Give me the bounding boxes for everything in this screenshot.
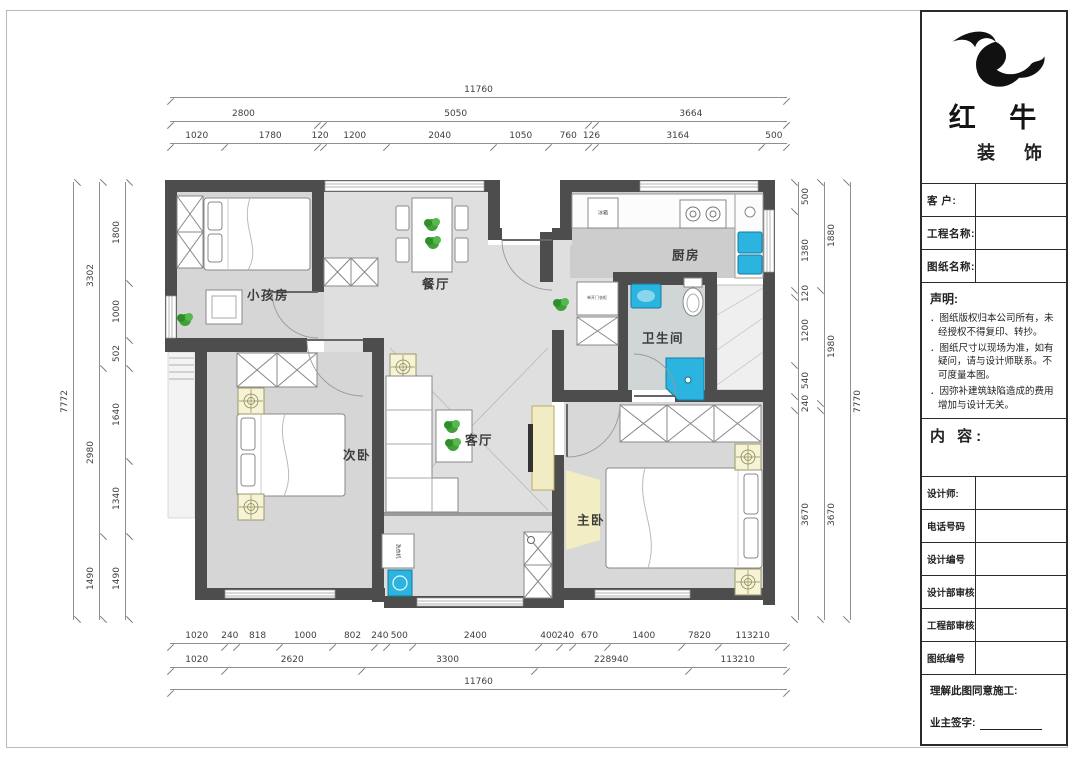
title-block: 红 牛 装 饰 客 户: 工程名称: 图纸名称: 声明: 图纸版权归本公司所有，… bbox=[920, 10, 1068, 746]
project-name-value-cell[interactable] bbox=[976, 217, 1066, 249]
dimension-value: 502 bbox=[113, 345, 122, 362]
dim-segment: 1200 bbox=[798, 297, 814, 366]
client-row: 客 户: bbox=[922, 184, 1066, 217]
closet-label: 单开门衣柜 bbox=[587, 295, 607, 301]
design-dept-review-label: 设计部审核 bbox=[922, 576, 976, 608]
dimension-value: 1000 bbox=[113, 300, 122, 323]
dimension-value: 1000 bbox=[294, 632, 317, 641]
dimension-value: 7820 bbox=[688, 632, 711, 641]
dimension-value: 1640 bbox=[113, 403, 122, 426]
dim-segment: 1000 bbox=[279, 630, 331, 644]
dimension-value: 2620 bbox=[281, 656, 304, 665]
dim-segment: 240 bbox=[224, 630, 237, 644]
dim-segment: 2980 bbox=[84, 368, 100, 536]
dimension-value: 3164 bbox=[666, 132, 689, 141]
dim-chain-bottom-detail: 1020240818100080224050024004002406701400… bbox=[170, 630, 787, 644]
washer-label: 洗衣机 bbox=[395, 543, 402, 558]
dim-segment: 3664 bbox=[595, 108, 787, 122]
dim-segment: 113210 bbox=[718, 630, 787, 644]
dimension-value: 2800 bbox=[232, 110, 255, 119]
drawing-name-row: 图纸名称: bbox=[922, 250, 1066, 283]
signature-section: 理解此图同意施工: 业主签字: bbox=[922, 675, 1066, 744]
drawing-name-value-cell[interactable] bbox=[976, 250, 1066, 282]
dim-segment: 240 bbox=[559, 630, 572, 644]
phone-row: 电话号码 bbox=[922, 510, 1066, 543]
second-bedroom-nightstand-2 bbox=[238, 494, 264, 520]
dimension-value: 2400 bbox=[464, 632, 487, 641]
dimension-value: 1800 bbox=[113, 221, 122, 244]
dim-segment: 540 bbox=[798, 365, 814, 396]
dimension-value: 1490 bbox=[87, 567, 96, 590]
dim-segment: 120 bbox=[798, 290, 814, 297]
dim-segment: 1780 bbox=[224, 130, 317, 144]
dimension-value: 7772 bbox=[61, 390, 70, 413]
dim-segment: 3670 bbox=[798, 410, 814, 620]
dimension-value: 1340 bbox=[113, 487, 122, 510]
dim-segment: 1020 bbox=[170, 130, 224, 144]
dimension-value: 3302 bbox=[87, 264, 96, 287]
dimension-value: 1980 bbox=[828, 335, 837, 358]
dimension-value: 113210 bbox=[721, 656, 755, 665]
drawing-number-label: 图纸编号 bbox=[922, 642, 976, 674]
dimension-value: 400 bbox=[540, 632, 557, 641]
dimension-value: 3670 bbox=[828, 503, 837, 526]
drawing-number-value-cell[interactable] bbox=[976, 642, 1066, 674]
dim-segment: 5050 bbox=[323, 108, 588, 122]
designer-row: 设计师: bbox=[922, 477, 1066, 510]
dim-segment: 670 bbox=[572, 630, 607, 644]
room-label-second-bedroom: 次卧 bbox=[343, 445, 371, 464]
dim-segment: 240 bbox=[798, 396, 814, 410]
room-label-kids-room: 小孩房 bbox=[247, 285, 289, 304]
dimension-value: 1020 bbox=[185, 656, 208, 665]
dim-segment: 228940 bbox=[534, 654, 688, 668]
dim-segment: 2040 bbox=[386, 130, 493, 144]
dim-chain-right-total: 7770 bbox=[850, 182, 866, 620]
room-label-dining-room: 餐厅 bbox=[422, 274, 450, 293]
design-number-value-cell[interactable] bbox=[976, 543, 1066, 575]
engineering-dept-review-row: 工程部审核 bbox=[922, 609, 1066, 642]
content-section: 内 容: bbox=[922, 419, 1066, 477]
dim-segment: 1020 bbox=[170, 654, 224, 668]
dim-segment: 502 bbox=[110, 340, 126, 368]
dimension-value: 1400 bbox=[632, 632, 655, 641]
dim-segment: 818 bbox=[236, 630, 279, 644]
dim-segment bbox=[824, 403, 840, 410]
master-nightstand-1 bbox=[735, 444, 761, 470]
dim-segment: 113210 bbox=[688, 654, 787, 668]
statement-item: 因弥补建筑缺陷造成的费用增加与设计无关。 bbox=[930, 385, 1060, 413]
left-exterior-strip bbox=[168, 352, 195, 518]
dim-segment: 1490 bbox=[110, 536, 126, 620]
corridor-closet bbox=[577, 282, 618, 345]
brand-name-primary: 红 牛 bbox=[939, 96, 1050, 135]
dim-chain-left-total: 7772 bbox=[58, 182, 74, 620]
dim-chain-top-detail: 102017801201200204010507601263164500 bbox=[170, 130, 787, 144]
dim-segment: 240 bbox=[374, 630, 387, 644]
engineering-dept-review-label: 工程部审核 bbox=[922, 609, 976, 641]
drawing-number-row: 图纸编号 bbox=[922, 642, 1066, 675]
dimension-value: 1050 bbox=[509, 132, 532, 141]
statement-title: 声明: bbox=[930, 290, 1060, 307]
dim-segment: 3302 bbox=[84, 182, 100, 368]
dim-chain-left-detail: 18001000502164013401490 bbox=[110, 182, 126, 620]
dim-segment: 11760 bbox=[170, 676, 787, 690]
design-number-label: 设计编号 bbox=[922, 543, 976, 575]
dim-segment: 1050 bbox=[493, 130, 548, 144]
dim-segment: 11760 bbox=[170, 84, 787, 98]
room-label-master-bedroom: 主卧 bbox=[577, 510, 605, 529]
dimension-value: 500 bbox=[391, 632, 408, 641]
dim-segment: 1490 bbox=[84, 536, 100, 620]
phone-label: 电话号码 bbox=[922, 510, 976, 542]
design-dept-review-row: 设计部审核 bbox=[922, 576, 1066, 609]
dimension-value: 1020 bbox=[185, 632, 208, 641]
dim-segment: 500 bbox=[386, 630, 412, 644]
dimension-value: 1200 bbox=[343, 132, 366, 141]
client-label: 客 户: bbox=[922, 184, 976, 216]
design-dept-review-value-cell[interactable] bbox=[976, 576, 1066, 608]
dim-segment: 7820 bbox=[681, 630, 719, 644]
dim-segment: 500 bbox=[761, 130, 787, 144]
dim-chain-right-detail: 500138012012005402403670 bbox=[798, 182, 814, 620]
bull-swoosh-logo bbox=[939, 22, 1049, 94]
dimension-value: 3300 bbox=[436, 656, 459, 665]
dim-segment bbox=[588, 108, 595, 122]
statement-section: 声明: 图纸版权归本公司所有，未经授权不得复印、转抄。 图纸尺寸以现场为准，如有… bbox=[922, 283, 1066, 419]
dimension-value: 1490 bbox=[113, 567, 122, 590]
dim-chain-right-groups: 188019803670 bbox=[824, 182, 840, 620]
dimension-value: 760 bbox=[560, 132, 577, 141]
dim-segment: 7772 bbox=[58, 182, 74, 620]
brand-name-secondary: 装 饰 bbox=[977, 139, 1066, 165]
room-label-living-room: 客厅 bbox=[465, 430, 493, 449]
dimension-value: 2980 bbox=[87, 441, 96, 464]
dim-segment: 2620 bbox=[224, 654, 361, 668]
dim-segment: 500 bbox=[798, 182, 814, 211]
dim-segment: 3300 bbox=[361, 654, 534, 668]
dim-chain-top-groups: 280050503664 bbox=[170, 108, 787, 122]
dim-segment: 1000 bbox=[110, 283, 126, 339]
dimension-value: 540 bbox=[802, 372, 811, 389]
client-value-cell[interactable] bbox=[976, 184, 1066, 216]
dim-segment: 1020 bbox=[170, 630, 224, 644]
dimension-value: 500 bbox=[765, 132, 782, 141]
second-bedroom-nightstand-1 bbox=[238, 388, 264, 414]
dimension-value: 818 bbox=[249, 632, 266, 641]
dim-segment: 802 bbox=[332, 630, 374, 644]
designer-value-cell[interactable] bbox=[976, 477, 1066, 509]
dimension-value: 3670 bbox=[802, 503, 811, 526]
dimension-value: 113210 bbox=[735, 632, 769, 641]
dimension-value: 1020 bbox=[185, 132, 208, 141]
dimension-value: 5050 bbox=[444, 110, 467, 119]
project-name-row: 工程名称: bbox=[922, 217, 1066, 250]
dimension-value: 228940 bbox=[594, 656, 628, 665]
floorplan-page: 小孩房 餐厅 厨房 卫生间 次卧 客厅 主卧 洗衣机 冰箱 单开门衣柜 1176… bbox=[0, 0, 1080, 763]
dim-segment: 1880 bbox=[824, 182, 840, 290]
dim-segment: 1640 bbox=[110, 368, 126, 460]
owner-signature-label: 业主签字: bbox=[930, 715, 976, 730]
dim-chain-bottom-groups: 102026203300228940113210 bbox=[170, 654, 787, 668]
dimension-value: 802 bbox=[344, 632, 361, 641]
master-nightstand-2 bbox=[735, 569, 761, 595]
floor-plan-drawing bbox=[150, 168, 810, 643]
owner-signature-line[interactable] bbox=[980, 719, 1042, 730]
dimension-value: 7770 bbox=[854, 390, 863, 413]
fridge-label: 冰箱 bbox=[598, 210, 608, 217]
dimension-value: 11760 bbox=[464, 86, 493, 95]
design-number-row: 设计编号 bbox=[922, 543, 1066, 576]
dim-chain-left-groups: 330229801490 bbox=[84, 182, 100, 620]
dim-segment: 1200 bbox=[323, 130, 386, 144]
content-label: 内 容: bbox=[930, 428, 985, 445]
dim-segment: 126 bbox=[588, 130, 595, 144]
engineering-dept-review-value-cell[interactable] bbox=[976, 609, 1066, 641]
dim-segment: 3164 bbox=[595, 130, 761, 144]
dimension-value: 1380 bbox=[802, 239, 811, 262]
dim-segment: 1800 bbox=[110, 182, 126, 283]
duct-shaft bbox=[717, 285, 763, 390]
info-rows: 设计师: 电话号码 设计编号 设计部审核 工程部审核 图纸编号 bbox=[922, 477, 1066, 675]
dim-segment: 7770 bbox=[850, 182, 866, 620]
dim-segment: 1980 bbox=[824, 290, 840, 403]
dim-chain-top-total: 11760 bbox=[170, 84, 787, 98]
project-name-label: 工程名称: bbox=[922, 217, 976, 249]
dim-chain-bottom-total: 11760 bbox=[170, 676, 787, 690]
drawing-name-label: 图纸名称: bbox=[922, 250, 976, 282]
designer-label: 设计师: bbox=[922, 477, 976, 509]
dimension-value: 1200 bbox=[802, 319, 811, 342]
dimension-value: 500 bbox=[802, 188, 811, 205]
construction-agreement-text: 理解此图同意施工: bbox=[930, 683, 1058, 698]
statement-item: 图纸版权归本公司所有，未经授权不得复印、转抄。 bbox=[930, 312, 1060, 340]
dimension-value: 2040 bbox=[428, 132, 451, 141]
dim-segment: 1400 bbox=[607, 630, 680, 644]
dimension-value: 3664 bbox=[679, 110, 702, 119]
statement-item: 图纸尺寸以现场为准，如有疑问，请与设计师联系。不可度量本图。 bbox=[930, 342, 1060, 383]
dimension-value: 670 bbox=[581, 632, 598, 641]
company-logo-block: 红 牛 装 饰 bbox=[922, 12, 1066, 184]
dim-segment: 3670 bbox=[824, 410, 840, 620]
dim-segment: 2400 bbox=[412, 630, 538, 644]
room-label-kitchen: 厨房 bbox=[672, 245, 700, 264]
dimension-value: 1780 bbox=[259, 132, 282, 141]
phone-value-cell[interactable] bbox=[976, 510, 1066, 542]
dim-segment: 1340 bbox=[110, 461, 126, 537]
dimension-value: 1880 bbox=[828, 224, 837, 247]
dimension-value: 11760 bbox=[464, 678, 493, 687]
room-label-bathroom: 卫生间 bbox=[642, 328, 684, 347]
dim-segment: 2800 bbox=[170, 108, 317, 122]
dim-segment: 1380 bbox=[798, 211, 814, 290]
